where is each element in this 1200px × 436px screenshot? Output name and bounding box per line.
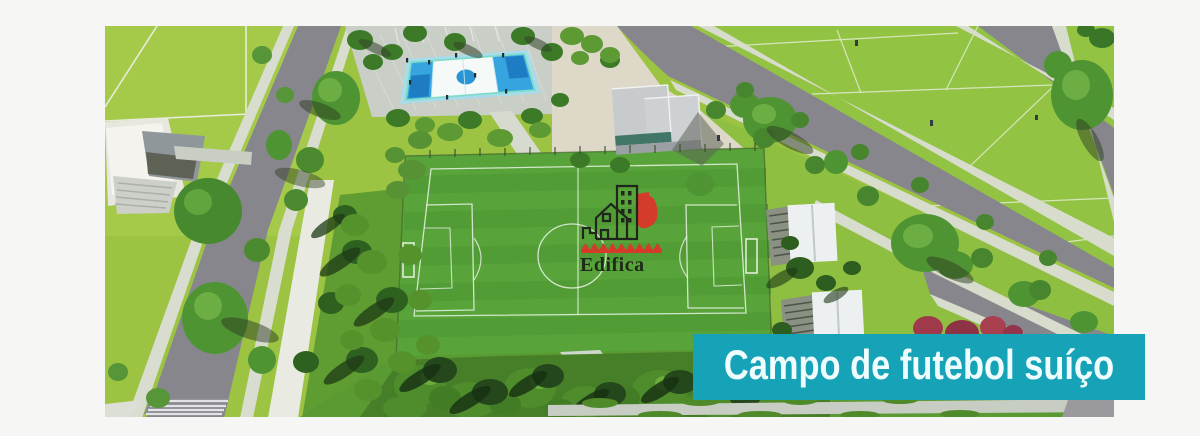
svg-text:Edifica: Edifica — [580, 254, 645, 276]
